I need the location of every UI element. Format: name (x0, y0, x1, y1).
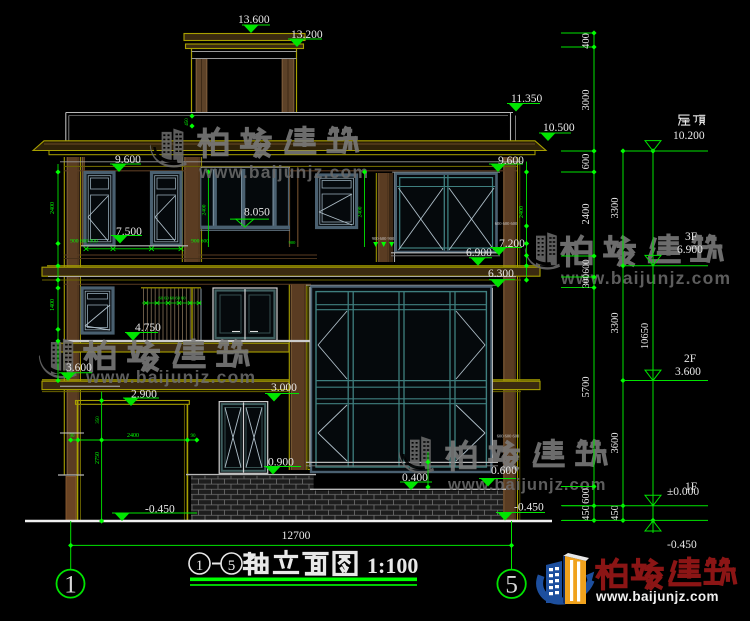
svg-text:12700: 12700 (282, 530, 311, 542)
svg-text:60 60 60 60 60: 60 60 60 60 60 (159, 296, 187, 301)
svg-text:5: 5 (505, 572, 518, 599)
svg-text:3300: 3300 (610, 198, 621, 219)
svg-text:6.900: 6.900 (466, 247, 492, 259)
svg-text:2400: 2400 (201, 204, 207, 215)
svg-text:1400: 1400 (50, 299, 56, 311)
svg-text:9.600: 9.600 (115, 154, 141, 166)
svg-text:0.900: 0.900 (268, 457, 294, 469)
svg-text:5: 5 (228, 558, 236, 574)
svg-text:9.600: 9.600 (498, 155, 524, 167)
svg-text:4.750: 4.750 (135, 322, 161, 334)
svg-text:900 600 900: 900 600 900 (372, 236, 395, 241)
svg-text:www.baijunjz.com: www.baijunjz.com (85, 367, 256, 387)
svg-text:10650: 10650 (640, 323, 651, 349)
svg-text:2400: 2400 (358, 206, 364, 217)
svg-text:-0.450: -0.450 (514, 502, 544, 514)
svg-text:13.600: 13.600 (238, 14, 270, 26)
svg-text:13.200: 13.200 (291, 29, 323, 41)
svg-text:3.000: 3.000 (271, 382, 297, 394)
svg-text:2400: 2400 (581, 204, 592, 225)
svg-text:7.200: 7.200 (499, 238, 525, 250)
svg-text:www.baijunjz.com: www.baijunjz.com (595, 589, 719, 604)
svg-text:6.300: 6.300 (488, 268, 514, 280)
svg-text:90: 90 (70, 434, 76, 439)
svg-text:600 600 600: 600 600 600 (495, 221, 518, 226)
svg-text:3300: 3300 (610, 313, 621, 334)
svg-text:-0.450: -0.450 (667, 539, 697, 551)
svg-text:350: 350 (96, 416, 101, 424)
svg-text:600 600 600: 600 600 600 (497, 434, 520, 439)
svg-text:3.600: 3.600 (66, 362, 92, 374)
svg-text:2400: 2400 (519, 206, 525, 218)
svg-text:-0.450: -0.450 (145, 504, 175, 516)
svg-text:0.400: 0.400 (402, 472, 428, 484)
svg-text:0.600: 0.600 (491, 465, 517, 477)
svg-text:1: 1 (64, 572, 77, 599)
svg-text:3000: 3000 (581, 90, 592, 111)
svg-text:400: 400 (581, 33, 592, 49)
svg-text:2400: 2400 (127, 433, 139, 439)
svg-text:±0.000: ±0.000 (667, 486, 699, 498)
svg-text:900 600: 900 600 (191, 239, 209, 245)
svg-text:90: 90 (191, 434, 197, 439)
svg-text:10.500: 10.500 (543, 122, 575, 134)
svg-text:3F: 3F (685, 231, 697, 243)
svg-text:2400: 2400 (50, 202, 56, 214)
svg-text:11.350: 11.350 (511, 93, 542, 105)
svg-text:900 600 900: 900 600 900 (70, 239, 98, 245)
svg-text:1:100: 1:100 (367, 553, 418, 578)
svg-text:600: 600 (582, 259, 592, 274)
svg-text:3600: 3600 (610, 433, 621, 454)
svg-text:5700: 5700 (581, 377, 592, 398)
svg-text:450: 450 (610, 505, 621, 521)
svg-text:600: 600 (581, 488, 592, 504)
svg-text:450: 450 (185, 118, 190, 126)
svg-text:2F: 2F (684, 353, 696, 365)
svg-text:1: 1 (196, 558, 204, 574)
svg-text:600: 600 (581, 154, 592, 170)
svg-text:www.baijunjz.com: www.baijunjz.com (198, 162, 369, 182)
svg-text:2750: 2750 (95, 452, 101, 464)
svg-text:10.200: 10.200 (673, 130, 705, 142)
svg-text:7.500: 7.500 (116, 226, 142, 238)
svg-text:900: 900 (289, 240, 297, 245)
svg-text:2.900: 2.900 (131, 389, 157, 401)
svg-text:8.050: 8.050 (244, 207, 270, 219)
svg-text:300: 300 (582, 274, 592, 289)
svg-text:6.900: 6.900 (677, 244, 703, 256)
svg-text:450: 450 (581, 505, 592, 521)
svg-text:3.600: 3.600 (675, 366, 701, 378)
